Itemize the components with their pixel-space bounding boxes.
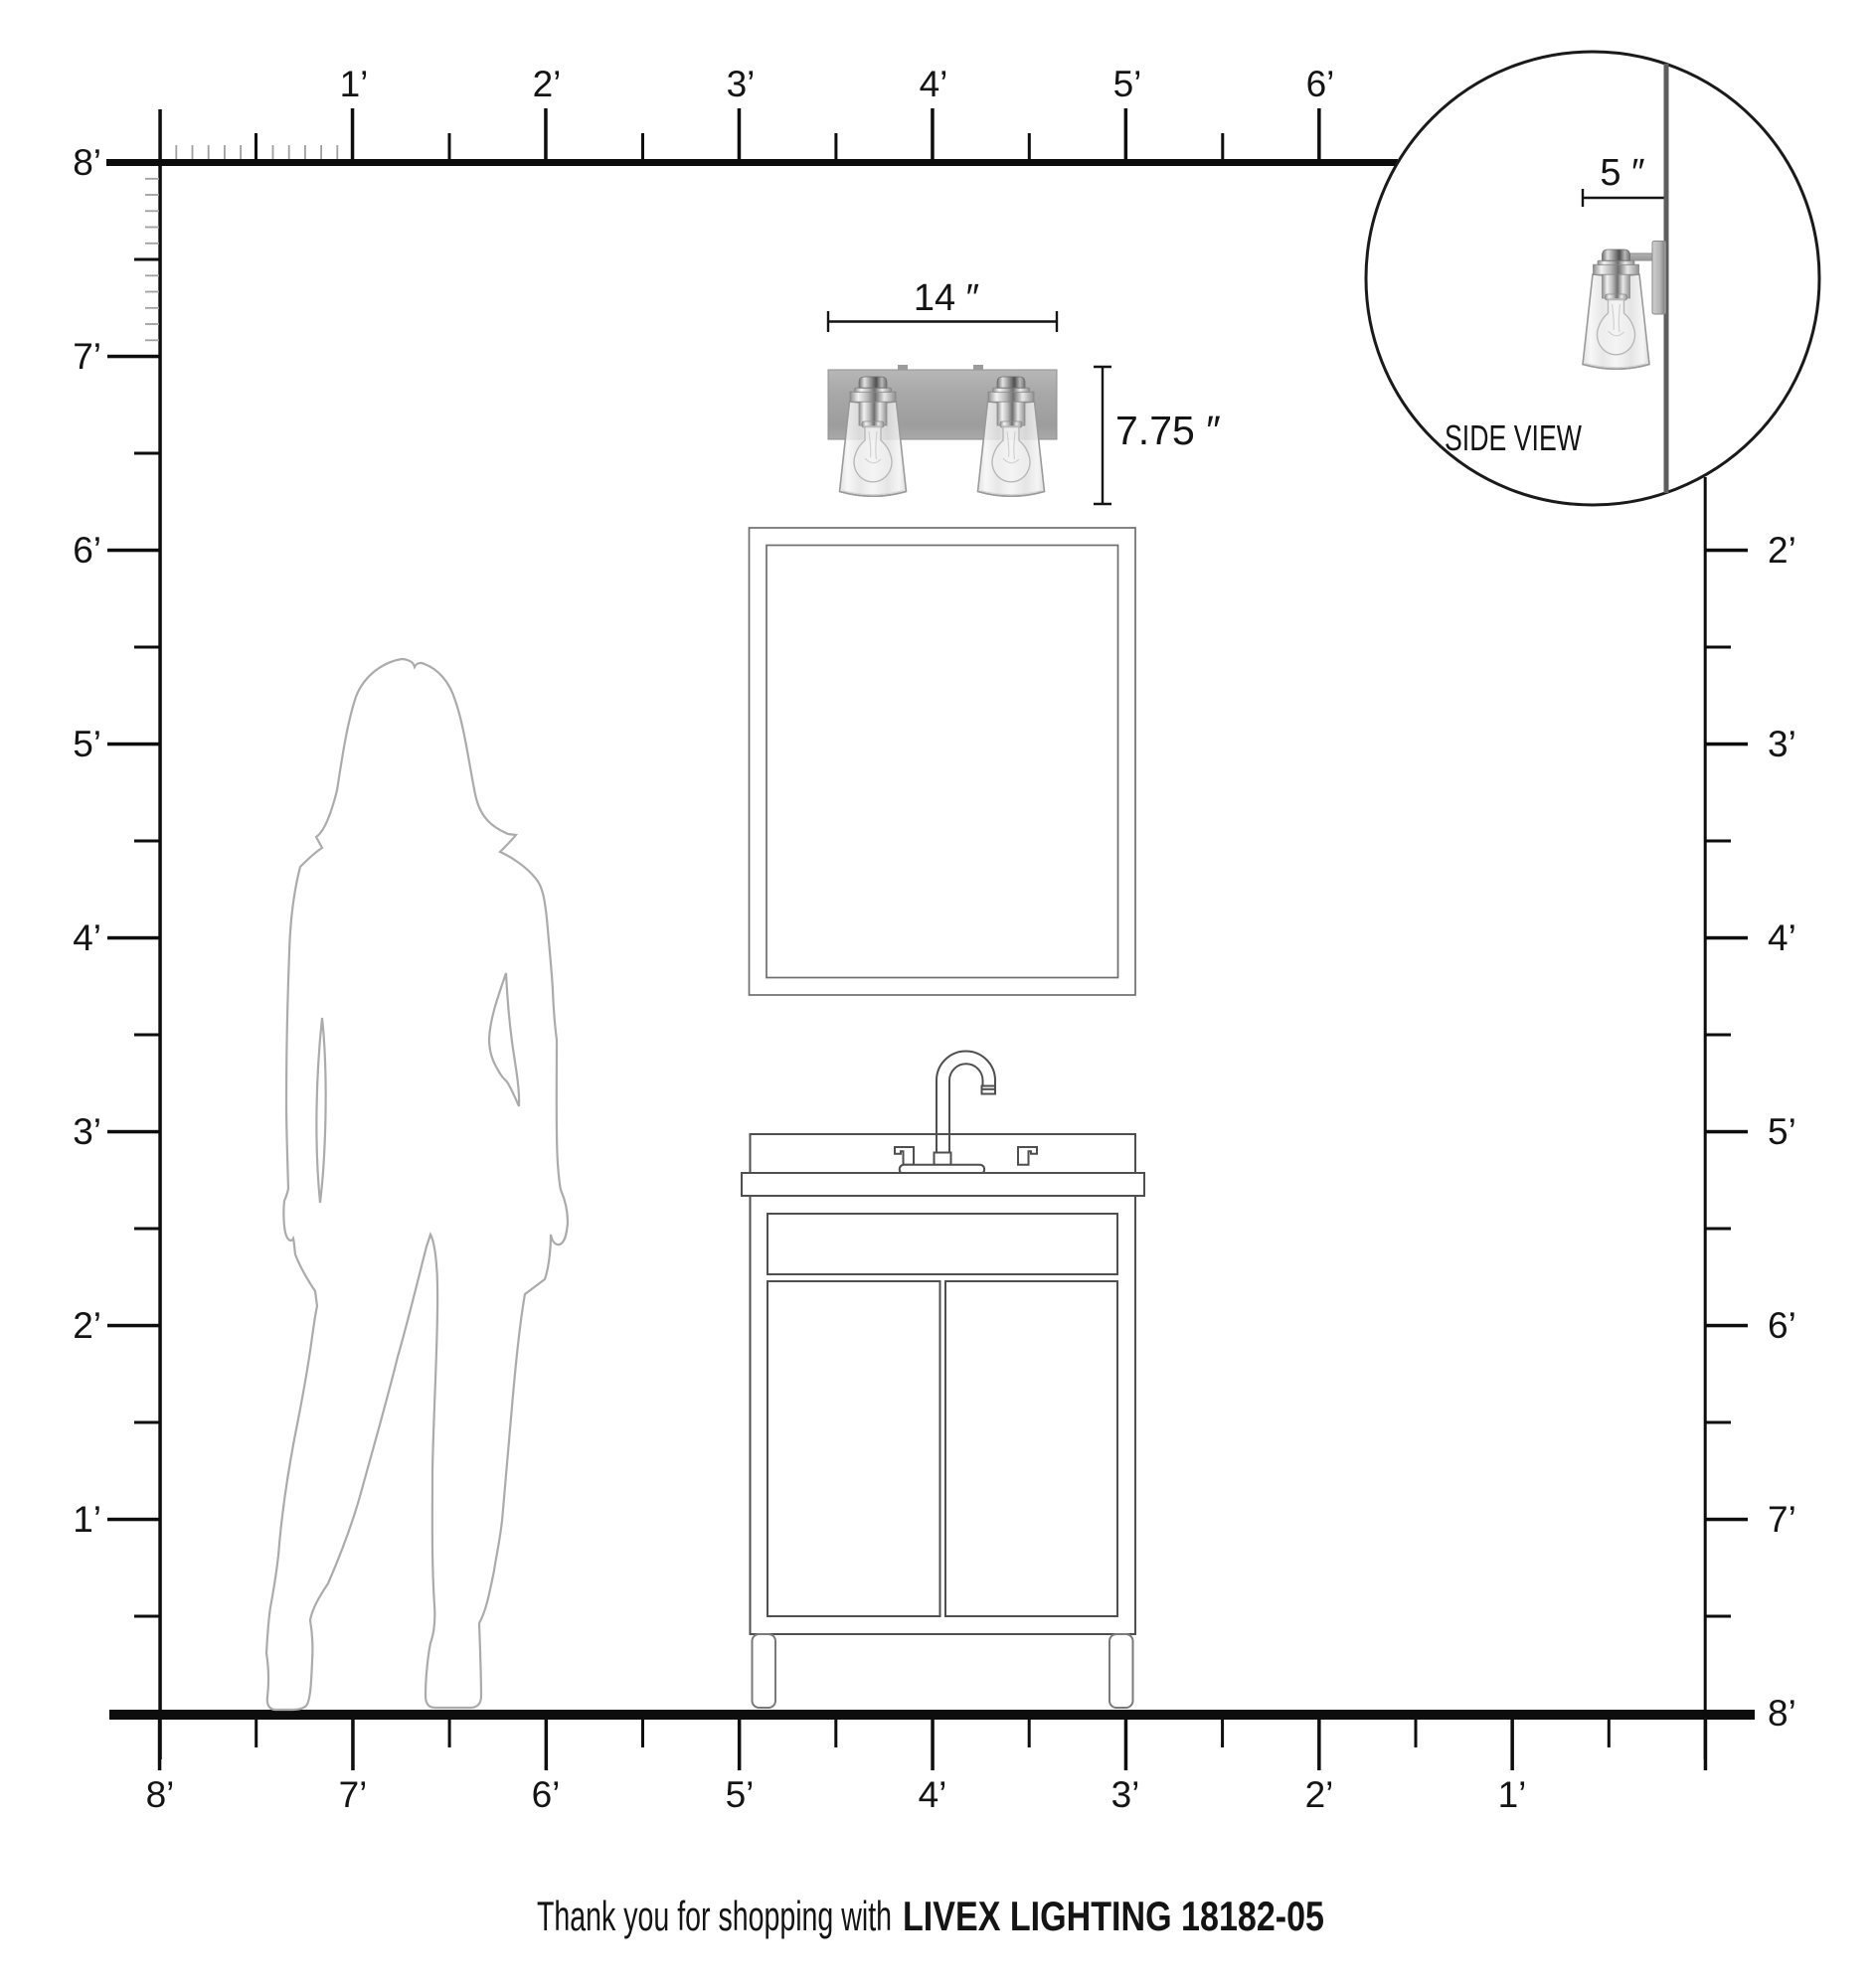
svg-text:3’: 3’ (1111, 1774, 1140, 1815)
svg-text:2’: 2’ (533, 64, 562, 104)
svg-text:2’: 2’ (73, 1305, 101, 1346)
svg-text:8’: 8’ (146, 1774, 175, 1815)
svg-text:7’: 7’ (339, 1774, 368, 1815)
svg-text:6’: 6’ (73, 530, 101, 571)
svg-text:3’: 3’ (73, 1111, 101, 1152)
svg-text:3’: 3’ (1768, 724, 1796, 764)
svg-text:4’: 4’ (1768, 917, 1796, 958)
svg-text:6’: 6’ (1306, 64, 1335, 104)
svg-text:Thank you for shopping withLIV: Thank you for shopping withLIVEX LIGHTIN… (537, 1893, 1324, 1939)
svg-text:2’: 2’ (1768, 530, 1796, 571)
svg-text:8’: 8’ (73, 142, 101, 183)
svg-text:5’: 5’ (726, 1774, 755, 1815)
svg-text:1’: 1’ (340, 64, 369, 104)
svg-text:5’: 5’ (1768, 1111, 1796, 1152)
svg-text:5 ″: 5 ″ (1600, 152, 1644, 194)
svg-text:7’: 7’ (1768, 1499, 1796, 1540)
svg-text:7’: 7’ (73, 336, 101, 377)
svg-text:6’: 6’ (1768, 1305, 1796, 1346)
svg-text:8’: 8’ (1768, 1693, 1796, 1734)
svg-text:2’: 2’ (1305, 1774, 1334, 1815)
svg-text:SIDE VIEW: SIDE VIEW (1445, 417, 1582, 458)
svg-text:5’: 5’ (73, 724, 101, 764)
svg-text:4’: 4’ (920, 64, 948, 104)
svg-text:4’: 4’ (73, 917, 101, 958)
svg-text:4’: 4’ (919, 1774, 947, 1815)
svg-text:1’: 1’ (73, 1499, 101, 1540)
svg-text:7.75 ″: 7.75 ″ (1115, 408, 1221, 453)
svg-text:3’: 3’ (727, 64, 756, 104)
svg-text:5’: 5’ (1113, 64, 1142, 104)
svg-text:14 ″: 14 ″ (914, 277, 979, 319)
svg-text:1’: 1’ (1498, 1774, 1527, 1815)
svg-text:6’: 6’ (532, 1774, 561, 1815)
